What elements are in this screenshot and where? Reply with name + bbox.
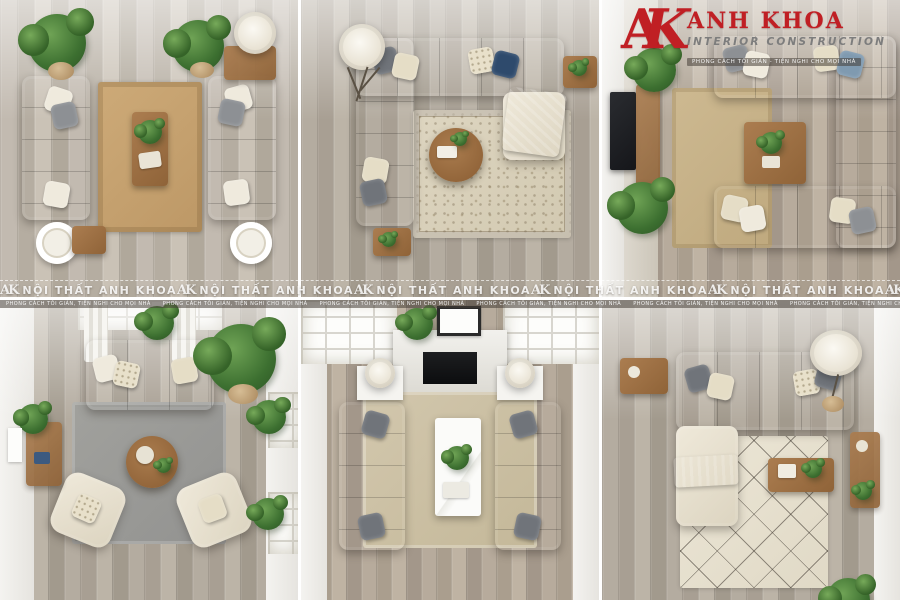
lamp-base bbox=[822, 396, 844, 412]
skylight-left bbox=[301, 300, 397, 364]
pillow bbox=[848, 206, 878, 236]
tv-console bbox=[636, 84, 660, 188]
wall-tv bbox=[610, 92, 636, 170]
watermark-ak-monogram: AK bbox=[531, 283, 548, 298]
gray-throw bbox=[673, 454, 738, 487]
wall-art bbox=[8, 428, 22, 462]
plant-pot bbox=[190, 62, 214, 78]
table-plant bbox=[445, 446, 469, 470]
plant-pot bbox=[228, 384, 258, 404]
caption-text: PHONG CÁCH TỐI GIẢN, TIỆN NGHI CHO MỌI N… bbox=[470, 300, 627, 308]
pillow bbox=[391, 52, 421, 82]
pillow bbox=[359, 178, 389, 208]
pillow bbox=[217, 98, 247, 128]
plant-pot bbox=[48, 62, 74, 80]
watermark-ak-monogram: AK bbox=[0, 283, 17, 298]
table-tray bbox=[136, 446, 154, 464]
shelf-plant bbox=[854, 482, 872, 500]
tripod-floor-lamp bbox=[339, 24, 385, 70]
brand-ak-monogram: AK bbox=[621, 4, 690, 54]
caption-text: PHONG CÁCH TỐI GIẢN, TIỆN NGHI CHO MỌI N… bbox=[627, 300, 784, 308]
pillow bbox=[222, 178, 250, 206]
watermark-item: AK NỘI THẤT ANH KHOA bbox=[354, 283, 531, 298]
pillow bbox=[357, 512, 387, 542]
watermark-item: AK NỘI THẤT ANH KHOA bbox=[0, 283, 177, 298]
pillow bbox=[112, 360, 142, 390]
gray-throw bbox=[501, 86, 567, 157]
photo-panel-1 bbox=[0, 0, 298, 297]
desk-plant bbox=[18, 404, 48, 434]
floor-lamp bbox=[810, 330, 862, 376]
collage-root: AK NỘI THẤT ANH KHOA AK NỘI THẤT ANH KHO… bbox=[0, 0, 900, 600]
watermark-ak-monogram: AK bbox=[708, 283, 725, 298]
desk-book bbox=[34, 452, 50, 464]
shelf-item bbox=[856, 440, 868, 452]
pillow bbox=[50, 101, 80, 131]
caption-text: PHONG CÁCH TỐI GIẢN, TIỆN NGHI CHO MỌI N… bbox=[784, 300, 900, 308]
picture-frame bbox=[437, 306, 481, 336]
watermark-text: NỘI THẤT ANH KHOA bbox=[22, 284, 177, 297]
table-plant bbox=[804, 460, 822, 478]
photo-panel-4 bbox=[0, 300, 298, 600]
caption-text: PHONG CÁCH TỐI GIẢN, TIỆN NGHI CHO MỌI N… bbox=[314, 300, 471, 308]
table-plant bbox=[138, 120, 162, 144]
table-tray bbox=[443, 482, 469, 498]
side-table bbox=[72, 226, 106, 254]
windowsill-plant bbox=[252, 498, 284, 530]
watermark-item: AK NỘI THẤT ANH KHOA bbox=[708, 283, 885, 298]
brand-subtitle: INTERIOR CONSTRUCTION bbox=[687, 36, 892, 48]
watermark-text: NỘI THẤT ANH KHOA bbox=[730, 284, 885, 297]
table-lamp bbox=[365, 358, 395, 388]
side-table-plant bbox=[571, 60, 587, 76]
watermark-item: AK NỘI THẤT ANH KHOA bbox=[177, 283, 354, 298]
caption-strip: PHONG CÁCH TỐI GIẢN, TIỆN NGHI CHO MỌI N… bbox=[0, 300, 900, 308]
window-plant bbox=[140, 306, 174, 340]
potted-plant bbox=[616, 182, 668, 234]
table-tray bbox=[437, 146, 457, 158]
watermark-item: AK NỘI THẤT ANH KHOA bbox=[885, 283, 900, 298]
windowsill-plant bbox=[252, 400, 286, 434]
table-plant bbox=[156, 458, 171, 473]
table-dish bbox=[628, 366, 640, 378]
fireplace-opening bbox=[423, 352, 477, 384]
brand-tagline: PHONG CÁCH TỐI GIẢN - TIỆN NGHI CHO MỌI … bbox=[687, 58, 861, 66]
watermark-item: AK NỘI THẤT ANH KHOA bbox=[531, 283, 708, 298]
side-table-plant bbox=[381, 232, 396, 247]
pillow bbox=[706, 372, 736, 402]
floor-lamp-shade bbox=[230, 222, 272, 264]
side-table bbox=[620, 358, 668, 394]
table-lamp bbox=[505, 358, 535, 388]
mantel-plant bbox=[401, 308, 433, 340]
pillow bbox=[738, 204, 767, 233]
photo-panel-2 bbox=[301, 0, 599, 297]
skylight-right bbox=[503, 300, 599, 364]
watermark-text: NỘI THẤT ANH KHOA bbox=[553, 284, 708, 297]
brand-name: ANH KHOA bbox=[687, 8, 892, 34]
caption-text: PHONG CÁCH TỐI GIẢN, TIỆN NGHI CHO MỌI N… bbox=[0, 300, 157, 308]
watermark-band: AK NỘI THẤT ANH KHOA AK NỘI THẤT ANH KHO… bbox=[0, 280, 900, 299]
pillow bbox=[42, 180, 71, 209]
photo-panel-5 bbox=[301, 300, 599, 600]
watermark-ak-monogram: AK bbox=[354, 283, 371, 298]
table-box bbox=[778, 464, 796, 478]
watermark-text: NỘI THẤT ANH KHOA bbox=[376, 284, 531, 297]
watermark-ak-monogram: AK bbox=[885, 283, 900, 298]
pillow bbox=[513, 512, 543, 542]
table-tray bbox=[762, 156, 780, 168]
caption-text: PHONG CÁCH TỐI GIẢN, TIỆN NGHI CHO MỌI N… bbox=[157, 300, 314, 308]
table-tray bbox=[138, 151, 162, 170]
watermark-text: NỘI THẤT ANH KHOA bbox=[199, 284, 354, 297]
table-lamp bbox=[234, 12, 276, 54]
table-plant bbox=[453, 132, 467, 146]
table-plant bbox=[760, 132, 782, 154]
watermark-ak-monogram: AK bbox=[177, 283, 194, 298]
photo-panel-6 bbox=[602, 300, 900, 600]
brand-logo: AK ANH KHOA INTERIOR CONSTRUCTION PHONG … bbox=[687, 2, 892, 67]
